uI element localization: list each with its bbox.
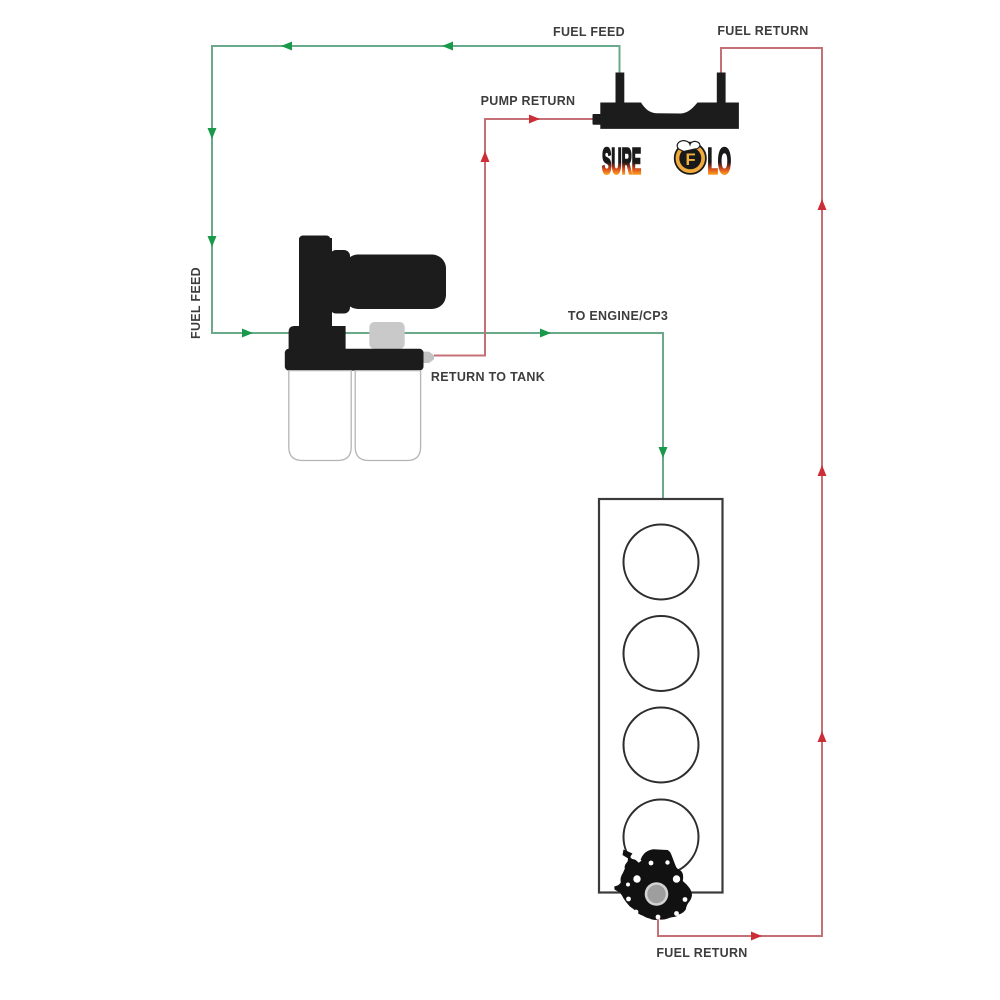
svg-text:FUEL FEED: FUEL FEED	[189, 267, 203, 339]
svg-text:FUEL RETURN: FUEL RETURN	[717, 24, 808, 38]
svg-text:SURE: SURE	[602, 143, 641, 182]
svg-text:TO ENGINE/CP3: TO ENGINE/CP3	[568, 309, 668, 323]
svg-text:RETURN TO TANK: RETURN TO TANK	[431, 370, 545, 384]
svg-text:FUEL RETURN: FUEL RETURN	[656, 946, 747, 960]
svg-text:PUMP RETURN: PUMP RETURN	[481, 94, 576, 108]
svg-text:FUEL FEED: FUEL FEED	[553, 25, 625, 39]
svg-text:F: F	[685, 151, 695, 169]
svg-text:LO: LO	[708, 143, 732, 182]
